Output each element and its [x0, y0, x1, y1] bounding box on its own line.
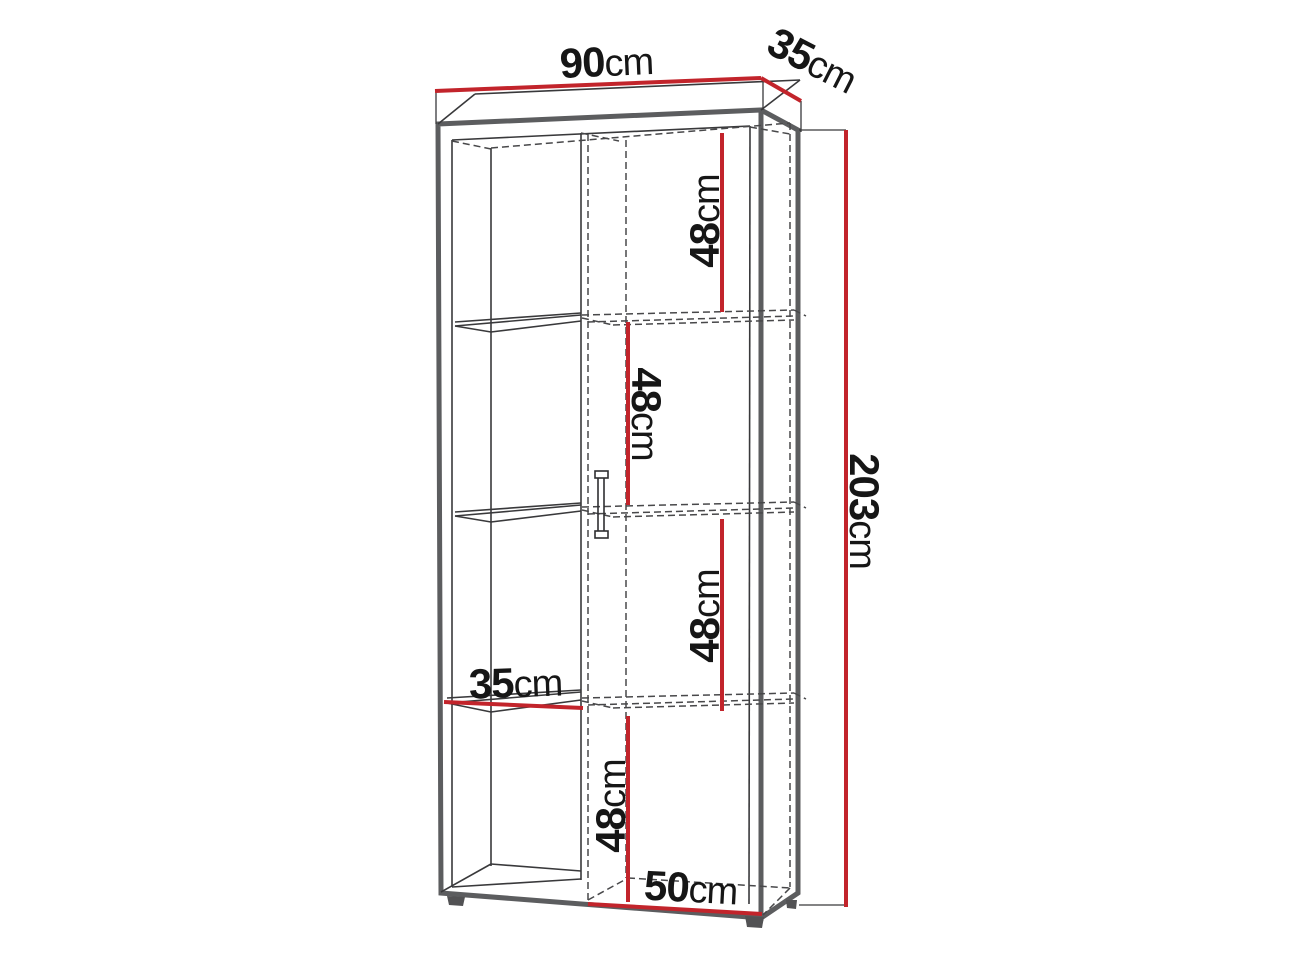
top-left-edge [438, 94, 475, 124]
cabinet-side-panel-outline [761, 110, 798, 918]
dimension-unit: cm [623, 412, 665, 461]
dimension-value: 48 [681, 617, 728, 662]
dimension-label-shelf-width: 35cm [468, 657, 563, 707]
hidden-shelf-back-edge [613, 703, 794, 708]
dimension-unit: cm [592, 759, 634, 808]
inner-bottom-front-edge [452, 879, 581, 887]
shelf-back-edge [491, 511, 581, 522]
cabinet-diagram-canvas: 90cm 35cm 203cm 48cm 48cm 48cm 48cm 35cm… [0, 0, 1307, 980]
hidden-shelf-back-edge [613, 512, 794, 517]
top-corner-diagonal-left [452, 141, 491, 149]
dimension-unit: cm [604, 41, 654, 85]
dimension-unit: cm [841, 520, 883, 569]
handle-bottom-cap [595, 531, 608, 538]
dimension-unit: cm [513, 662, 563, 706]
dimension-value: 203 [841, 453, 888, 520]
foot-back-right [786, 900, 797, 909]
dimension-extension-lines [436, 79, 846, 905]
shelf-lines-left-column [447, 313, 581, 712]
shelf-depth-diagonal [455, 516, 491, 522]
dimension-value: 48 [587, 807, 634, 852]
inner-bottom-back-edge [491, 864, 581, 871]
dimension-value: 48 [623, 367, 670, 412]
shelf-back-edge [491, 321, 581, 332]
top-corner-diagonal-right [750, 127, 790, 134]
dimension-label-compartment1: 48cm [681, 174, 728, 267]
dimension-label-compartment4: 48cm [587, 759, 634, 852]
dimension-label-compartment3: 48cm [681, 569, 728, 662]
dimension-value: 35 [468, 659, 515, 708]
hidden-shelf-top [582, 310, 806, 325]
handle-top-cap [595, 471, 608, 478]
hidden-shelf-bottom [582, 693, 806, 708]
dimension-label-height: 203cm [841, 453, 888, 569]
hidden-bottom-diagonal [588, 878, 628, 900]
hidden-shelf-diagonal [582, 318, 613, 325]
furniture-dimension-diagram: 90cm 35cm 203cm 48cm 48cm 48cm 48cm 35cm… [0, 0, 1307, 980]
dimension-value: 50 [643, 862, 690, 911]
inner-bottom-left-diagonal [441, 864, 491, 892]
dimension-label-width: 90cm [559, 36, 654, 87]
shelf-depth-diagonal [455, 326, 491, 332]
foot-front-right [745, 916, 764, 928]
top-corner-diagonal-center [581, 133, 619, 141]
hidden-shelf-back-edge [613, 320, 794, 325]
hidden-shelf-middle [582, 502, 806, 517]
door-handle [595, 471, 608, 538]
foot-front-left [447, 896, 465, 906]
shelf-top [455, 313, 581, 332]
dimension-label-depth: 35cm [760, 18, 865, 102]
dimension-unit: cm [688, 869, 739, 913]
dimension-lines-red [435, 78, 846, 914]
dimension-value: 48 [681, 222, 728, 267]
dimension-label-door-width: 50cm [643, 862, 739, 914]
hidden-shelf-diagonal [582, 701, 613, 708]
shelf-middle [455, 503, 581, 522]
dimension-unit: cm [686, 174, 728, 223]
dimension-unit: cm [686, 569, 728, 618]
dimension-value: 90 [559, 38, 606, 87]
inner-right-edge [749, 126, 750, 904]
inner-top-edge [452, 126, 750, 140]
dimension-labels: 90cm 35cm 203cm 48cm 48cm 48cm 48cm 35cm… [468, 18, 888, 913]
dimension-label-compartment2: 48cm [623, 367, 670, 460]
